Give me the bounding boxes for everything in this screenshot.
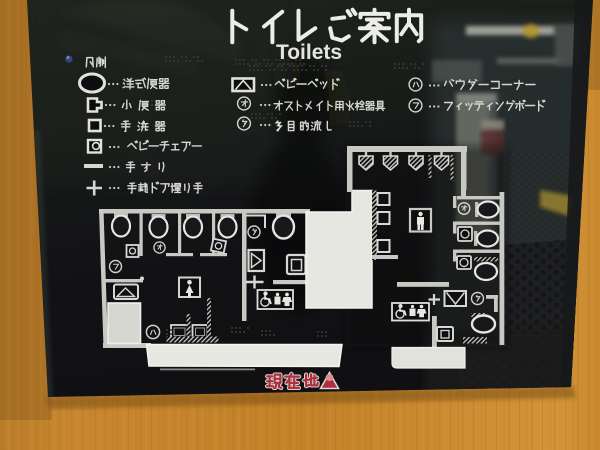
svg-text:Toilets: Toilets (276, 41, 342, 64)
